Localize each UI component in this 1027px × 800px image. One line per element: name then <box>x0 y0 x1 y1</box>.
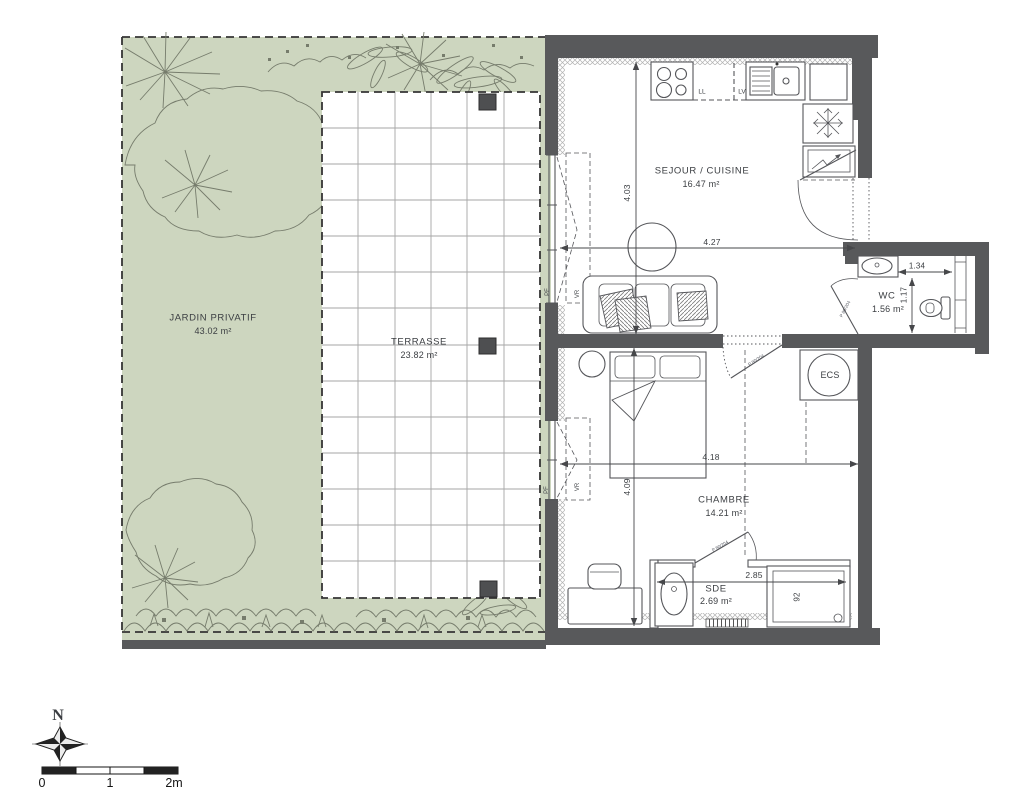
walls <box>545 35 989 645</box>
dimension-wc-height: 1.17 <box>900 287 909 303</box>
compass-rose <box>32 722 88 766</box>
kitchen-fixtures <box>651 62 855 180</box>
plan-drawing <box>0 0 1027 800</box>
post <box>479 94 496 110</box>
label-sejour-area: 16.47 m² <box>682 179 719 189</box>
label-roller-shutter-sejour: VR <box>575 290 581 298</box>
toilet <box>920 297 950 319</box>
post <box>479 338 496 354</box>
label-chambre-area: 14.21 m² <box>705 508 742 518</box>
wall-right-outer <box>975 242 989 354</box>
wall-wc-top <box>843 242 983 256</box>
chambre-door <box>723 336 782 378</box>
wall-right-lower <box>858 348 872 628</box>
wall-interior-right <box>782 334 975 348</box>
label-roller-shutter-chambre: VR <box>575 483 581 491</box>
scale-tick-1: 1 <box>107 776 114 790</box>
label-sejour-name: SEJOUR / CUISINE <box>655 166 750 177</box>
wall-left-upper <box>545 58 558 155</box>
sofa <box>583 276 717 333</box>
wall-wc-left-stub <box>845 256 858 264</box>
label-sde-name: SDE <box>705 584 726 595</box>
wall-right-upper <box>852 58 872 120</box>
label-sde-area: 2.69 m² <box>700 596 732 606</box>
threshold-strip <box>706 619 748 627</box>
closet-outline <box>745 350 806 558</box>
dimension-sejour-width: 4.27 <box>703 237 720 247</box>
sde-vanity <box>655 563 693 626</box>
wc-vent-window <box>955 256 966 333</box>
wall-left-mid <box>545 303 558 348</box>
label-jardin-name: JARDIN PRIVATIF <box>169 313 256 324</box>
wall-right-entry <box>858 120 872 178</box>
label-terrasse-area: 23.82 m² <box>400 350 437 360</box>
electrical-panel <box>803 146 855 180</box>
snowflake-icon <box>813 108 843 138</box>
bedside-table <box>579 351 605 377</box>
dimension-sde-width: 2.85 <box>745 570 762 580</box>
label-wc-name: WC <box>878 291 895 302</box>
label-jardin-area: 43.02 m² <box>194 326 231 336</box>
round-table <box>628 223 676 271</box>
cushion <box>677 291 708 321</box>
label-french-window-chambre: PF <box>544 486 550 494</box>
wall-top <box>545 35 878 58</box>
scale-bar <box>42 767 178 774</box>
wall-left-chambre-upper <box>545 348 558 421</box>
post <box>480 581 497 597</box>
sejour-furniture <box>583 223 717 333</box>
window-chambre <box>546 418 590 500</box>
scale-tick-2: 2m <box>165 776 182 790</box>
dimension-shower-width: 92 <box>793 592 802 601</box>
wall-interior-left <box>558 334 723 348</box>
floor-plan: JARDIN PRIVATIF 43.02 m² TERRASSE 23.82 … <box>0 0 1027 800</box>
scale-tick-0: 0 <box>39 776 46 790</box>
desk <box>568 588 642 624</box>
label-washing-machine: LL <box>698 89 705 96</box>
dimension-wc-width: 1.34 <box>909 262 925 271</box>
label-chambre-name: CHAMBRE <box>698 495 750 506</box>
dimension-sejour-height: 4.03 <box>622 184 632 201</box>
shower <box>767 566 850 627</box>
bed <box>610 352 706 478</box>
cabinet <box>810 64 847 100</box>
compass-north-label: N <box>52 707 64 725</box>
label-ecs: ECS <box>820 370 839 380</box>
garden-edge-wall <box>122 640 546 649</box>
label-wc-area: 1.56 m² <box>872 304 904 314</box>
wall-left-chambre-lower <box>545 499 558 628</box>
label-dishwasher: LV <box>738 89 745 96</box>
label-terrasse-name: TERRASSE <box>391 337 447 348</box>
window-sejour <box>546 153 590 303</box>
wall-bottom <box>545 628 880 645</box>
label-french-window-sejour: PF <box>545 288 551 296</box>
dimension-chambre-width: 4.18 <box>702 452 719 462</box>
chair <box>588 564 621 589</box>
dimension-chambre-height: 4.09 <box>622 478 632 495</box>
cushion <box>615 296 651 332</box>
sde-door <box>695 532 756 563</box>
